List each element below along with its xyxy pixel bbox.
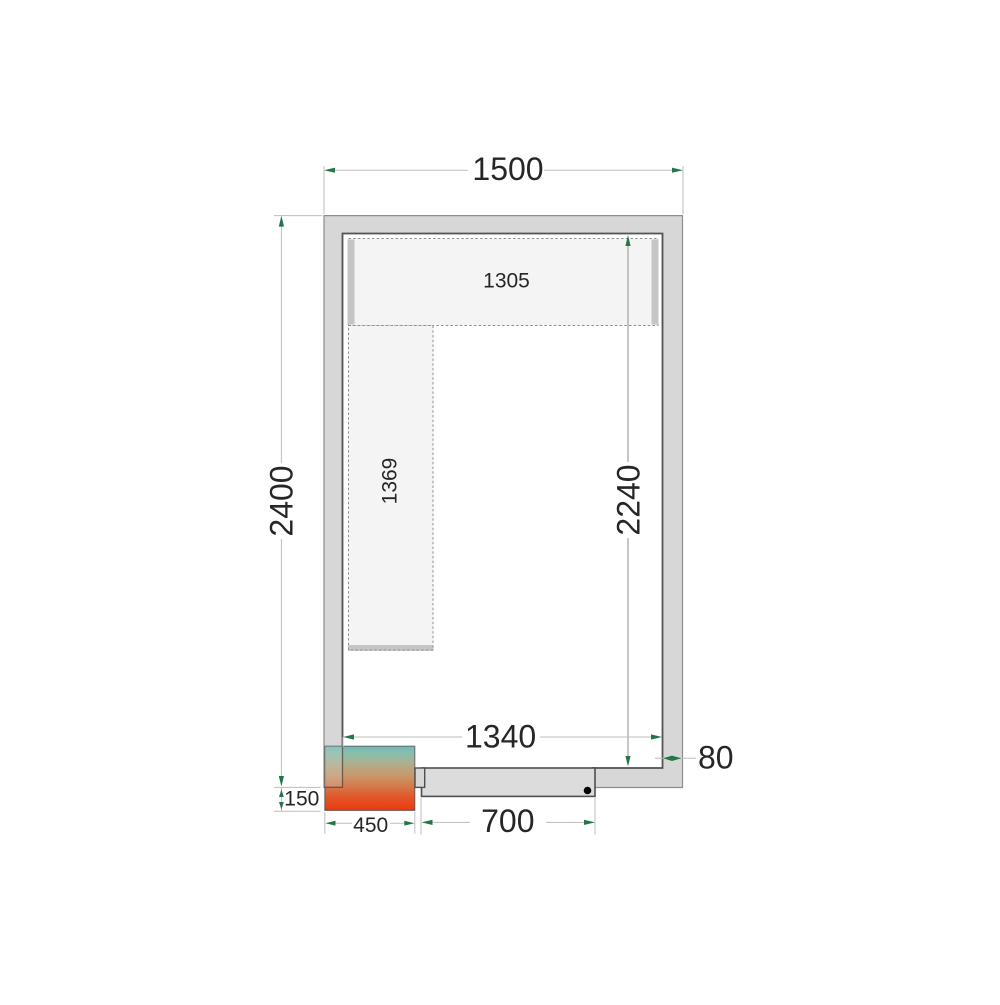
svg-text:1340: 1340: [465, 719, 536, 755]
svg-text:150: 150: [284, 788, 319, 811]
svg-text:80: 80: [698, 740, 734, 776]
svg-text:2240: 2240: [611, 464, 647, 535]
svg-text:450: 450: [353, 814, 388, 837]
svg-text:700: 700: [481, 803, 534, 839]
svg-text:1305: 1305: [483, 270, 530, 293]
svg-text:2400: 2400: [264, 465, 300, 536]
svg-text:1500: 1500: [472, 151, 543, 187]
svg-text:1369: 1369: [379, 458, 402, 505]
